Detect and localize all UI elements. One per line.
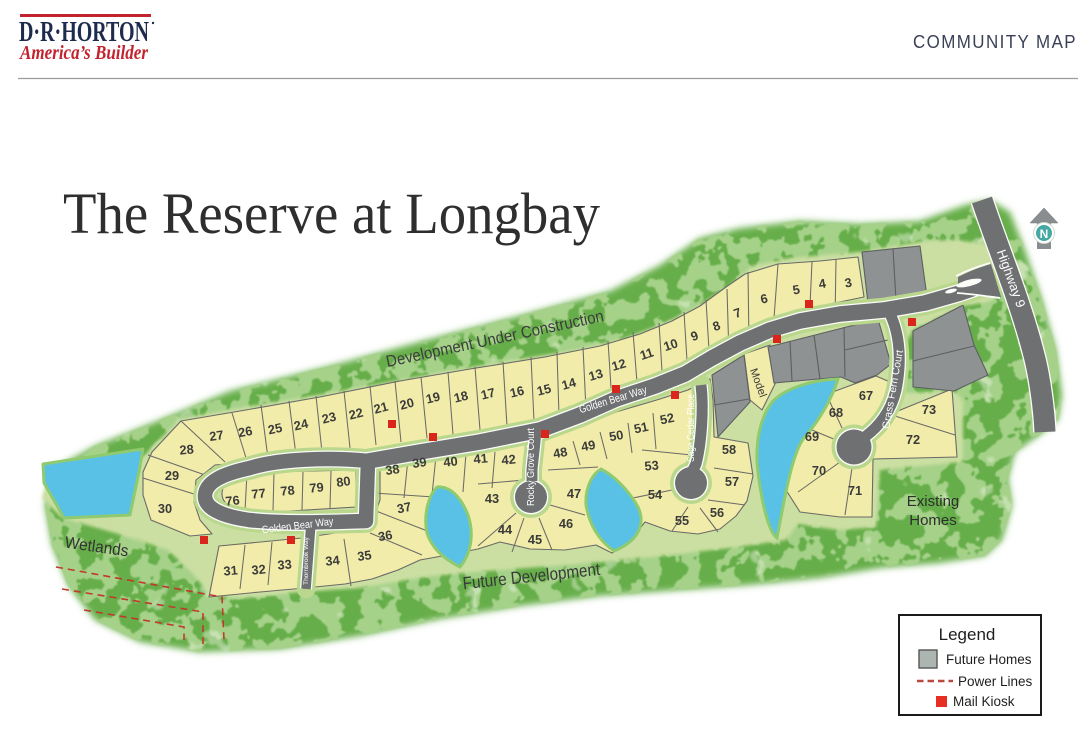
svg-text:80: 80 (335, 473, 351, 490)
svg-text:54: 54 (648, 487, 663, 502)
svg-text:28: 28 (179, 441, 194, 457)
svg-text:58: 58 (722, 442, 736, 457)
svg-text:43: 43 (485, 491, 499, 506)
svg-text:70: 70 (812, 463, 826, 478)
svg-text:34: 34 (325, 552, 342, 568)
svg-text:73: 73 (922, 402, 936, 417)
svg-text:America’s Builder: America’s Builder (18, 42, 148, 64)
svg-text:Power Lines: Power Lines (958, 674, 1033, 689)
svg-text:77: 77 (251, 485, 267, 501)
svg-text:33: 33 (277, 556, 292, 572)
svg-text:35: 35 (356, 547, 372, 564)
svg-text:46: 46 (559, 516, 573, 531)
svg-text:47: 47 (567, 486, 581, 501)
svg-text:57: 57 (725, 474, 739, 489)
svg-text:N: N (1040, 227, 1049, 241)
svg-text:30: 30 (158, 501, 172, 516)
svg-text:41: 41 (473, 450, 488, 466)
svg-text:51: 51 (633, 419, 650, 437)
svg-text:Future Homes: Future Homes (946, 652, 1032, 667)
svg-text:Rocky Grove Court: Rocky Grove Court (526, 428, 537, 506)
svg-text:COMMUNITY MAP: COMMUNITY MAP (913, 32, 1077, 52)
svg-text:49: 49 (580, 437, 597, 454)
svg-text:Homes: Homes (909, 512, 957, 529)
svg-text:76: 76 (225, 492, 241, 508)
svg-text:38: 38 (384, 461, 400, 478)
svg-text:25: 25 (267, 420, 284, 438)
svg-text:29: 29 (165, 468, 179, 483)
svg-text:42: 42 (501, 451, 516, 467)
svg-text:37: 37 (396, 499, 413, 517)
svg-text:45: 45 (528, 532, 542, 547)
svg-text:50: 50 (608, 427, 625, 444)
svg-text:39: 39 (411, 454, 427, 471)
svg-text:56: 56 (710, 505, 724, 520)
svg-text:48: 48 (552, 444, 569, 461)
svg-text:Mail Kiosk: Mail Kiosk (953, 694, 1015, 709)
svg-text:55: 55 (675, 513, 689, 528)
svg-text:78: 78 (280, 482, 296, 498)
svg-text:53: 53 (644, 457, 659, 473)
svg-text:26: 26 (237, 423, 254, 440)
svg-text:27: 27 (208, 427, 224, 444)
svg-text:31: 31 (223, 562, 238, 578)
svg-text:72: 72 (906, 432, 920, 447)
svg-text:32: 32 (251, 561, 266, 577)
svg-text:40: 40 (443, 453, 459, 469)
svg-text:Thornbrook Way: Thornbrook Way (303, 536, 310, 585)
svg-text:52: 52 (659, 410, 676, 428)
svg-text:36: 36 (377, 527, 394, 544)
svg-text:68: 68 (829, 405, 843, 420)
svg-text:79: 79 (309, 479, 325, 495)
svg-text:44: 44 (498, 522, 513, 537)
svg-text:71: 71 (848, 483, 862, 498)
svg-text:Legend: Legend (939, 625, 996, 644)
svg-text:The Reserve at Longbay: The Reserve at Longbay (63, 181, 600, 246)
svg-text:69: 69 (805, 429, 819, 444)
svg-text:Existing: Existing (907, 493, 960, 510)
svg-text:Sage Cedar Place: Sage Cedar Place (686, 394, 697, 462)
svg-text:67: 67 (859, 388, 873, 403)
